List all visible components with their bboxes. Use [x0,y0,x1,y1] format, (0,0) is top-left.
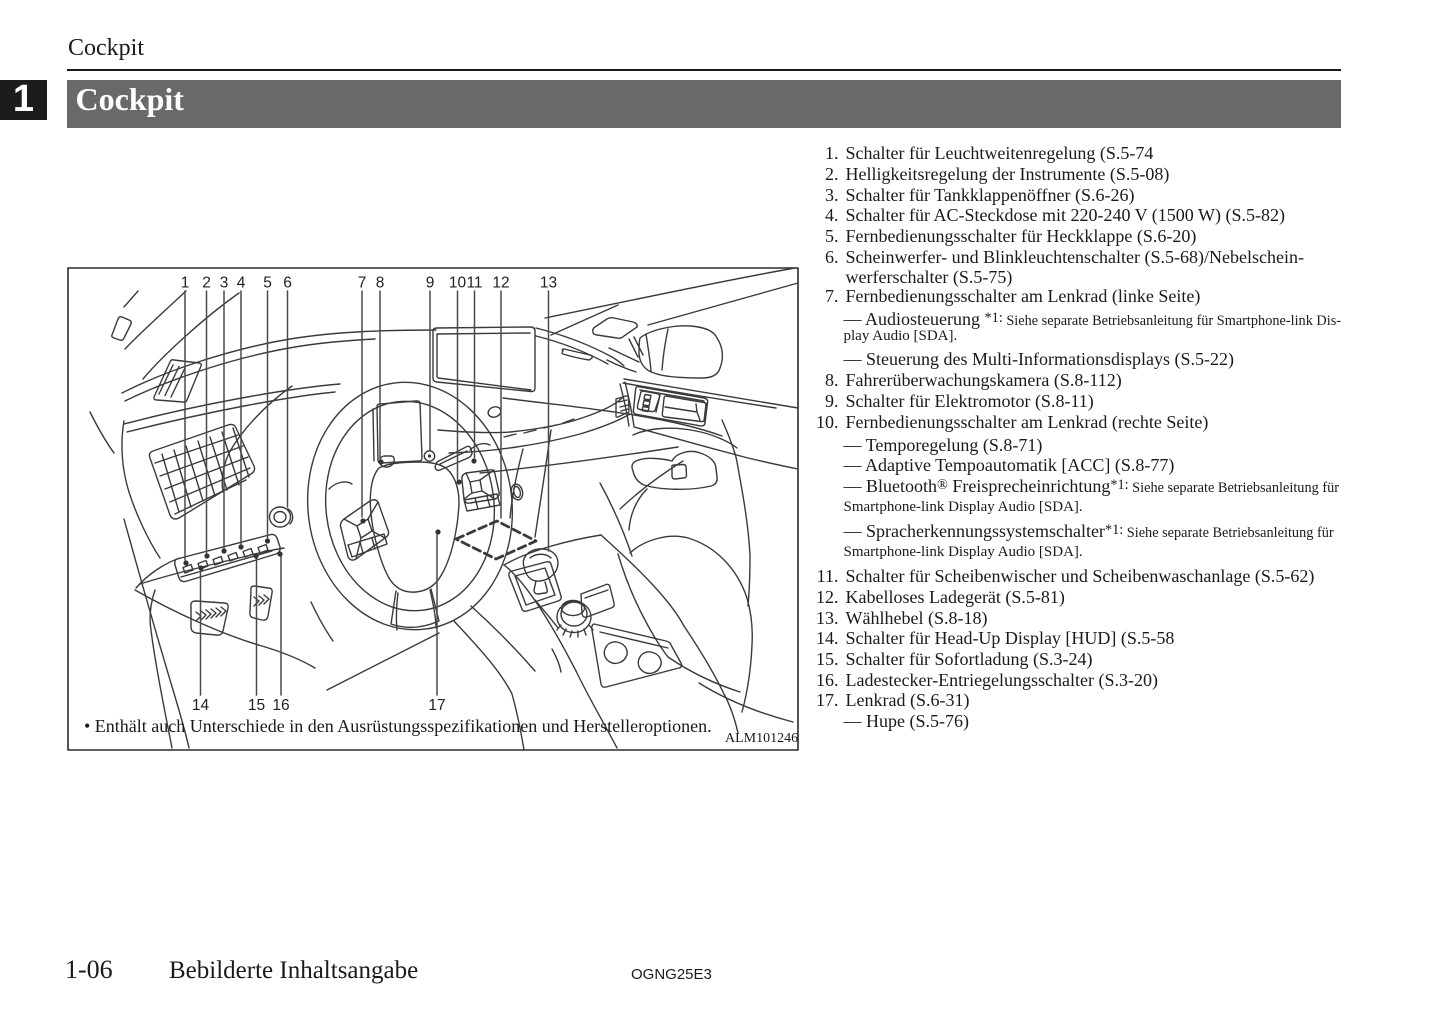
svg-text:9: 9 [426,275,435,292]
svg-text:3: 3 [220,275,229,292]
svg-text:5: 5 [263,275,272,292]
svg-text:11: 11 [466,275,482,292]
svg-text:16: 16 [272,697,289,714]
svg-text:2: 2 [202,275,211,292]
svg-text:12: 12 [492,275,509,292]
svg-text:13: 13 [540,275,557,292]
svg-text:6: 6 [283,275,292,292]
svg-text:17: 17 [428,697,445,714]
svg-text:7: 7 [358,275,367,292]
svg-text:10: 10 [449,275,467,292]
svg-text:1: 1 [181,275,190,292]
svg-text:4: 4 [237,275,246,292]
svg-text:14: 14 [192,697,210,714]
svg-text:15: 15 [248,697,265,714]
svg-text:8: 8 [376,275,385,292]
